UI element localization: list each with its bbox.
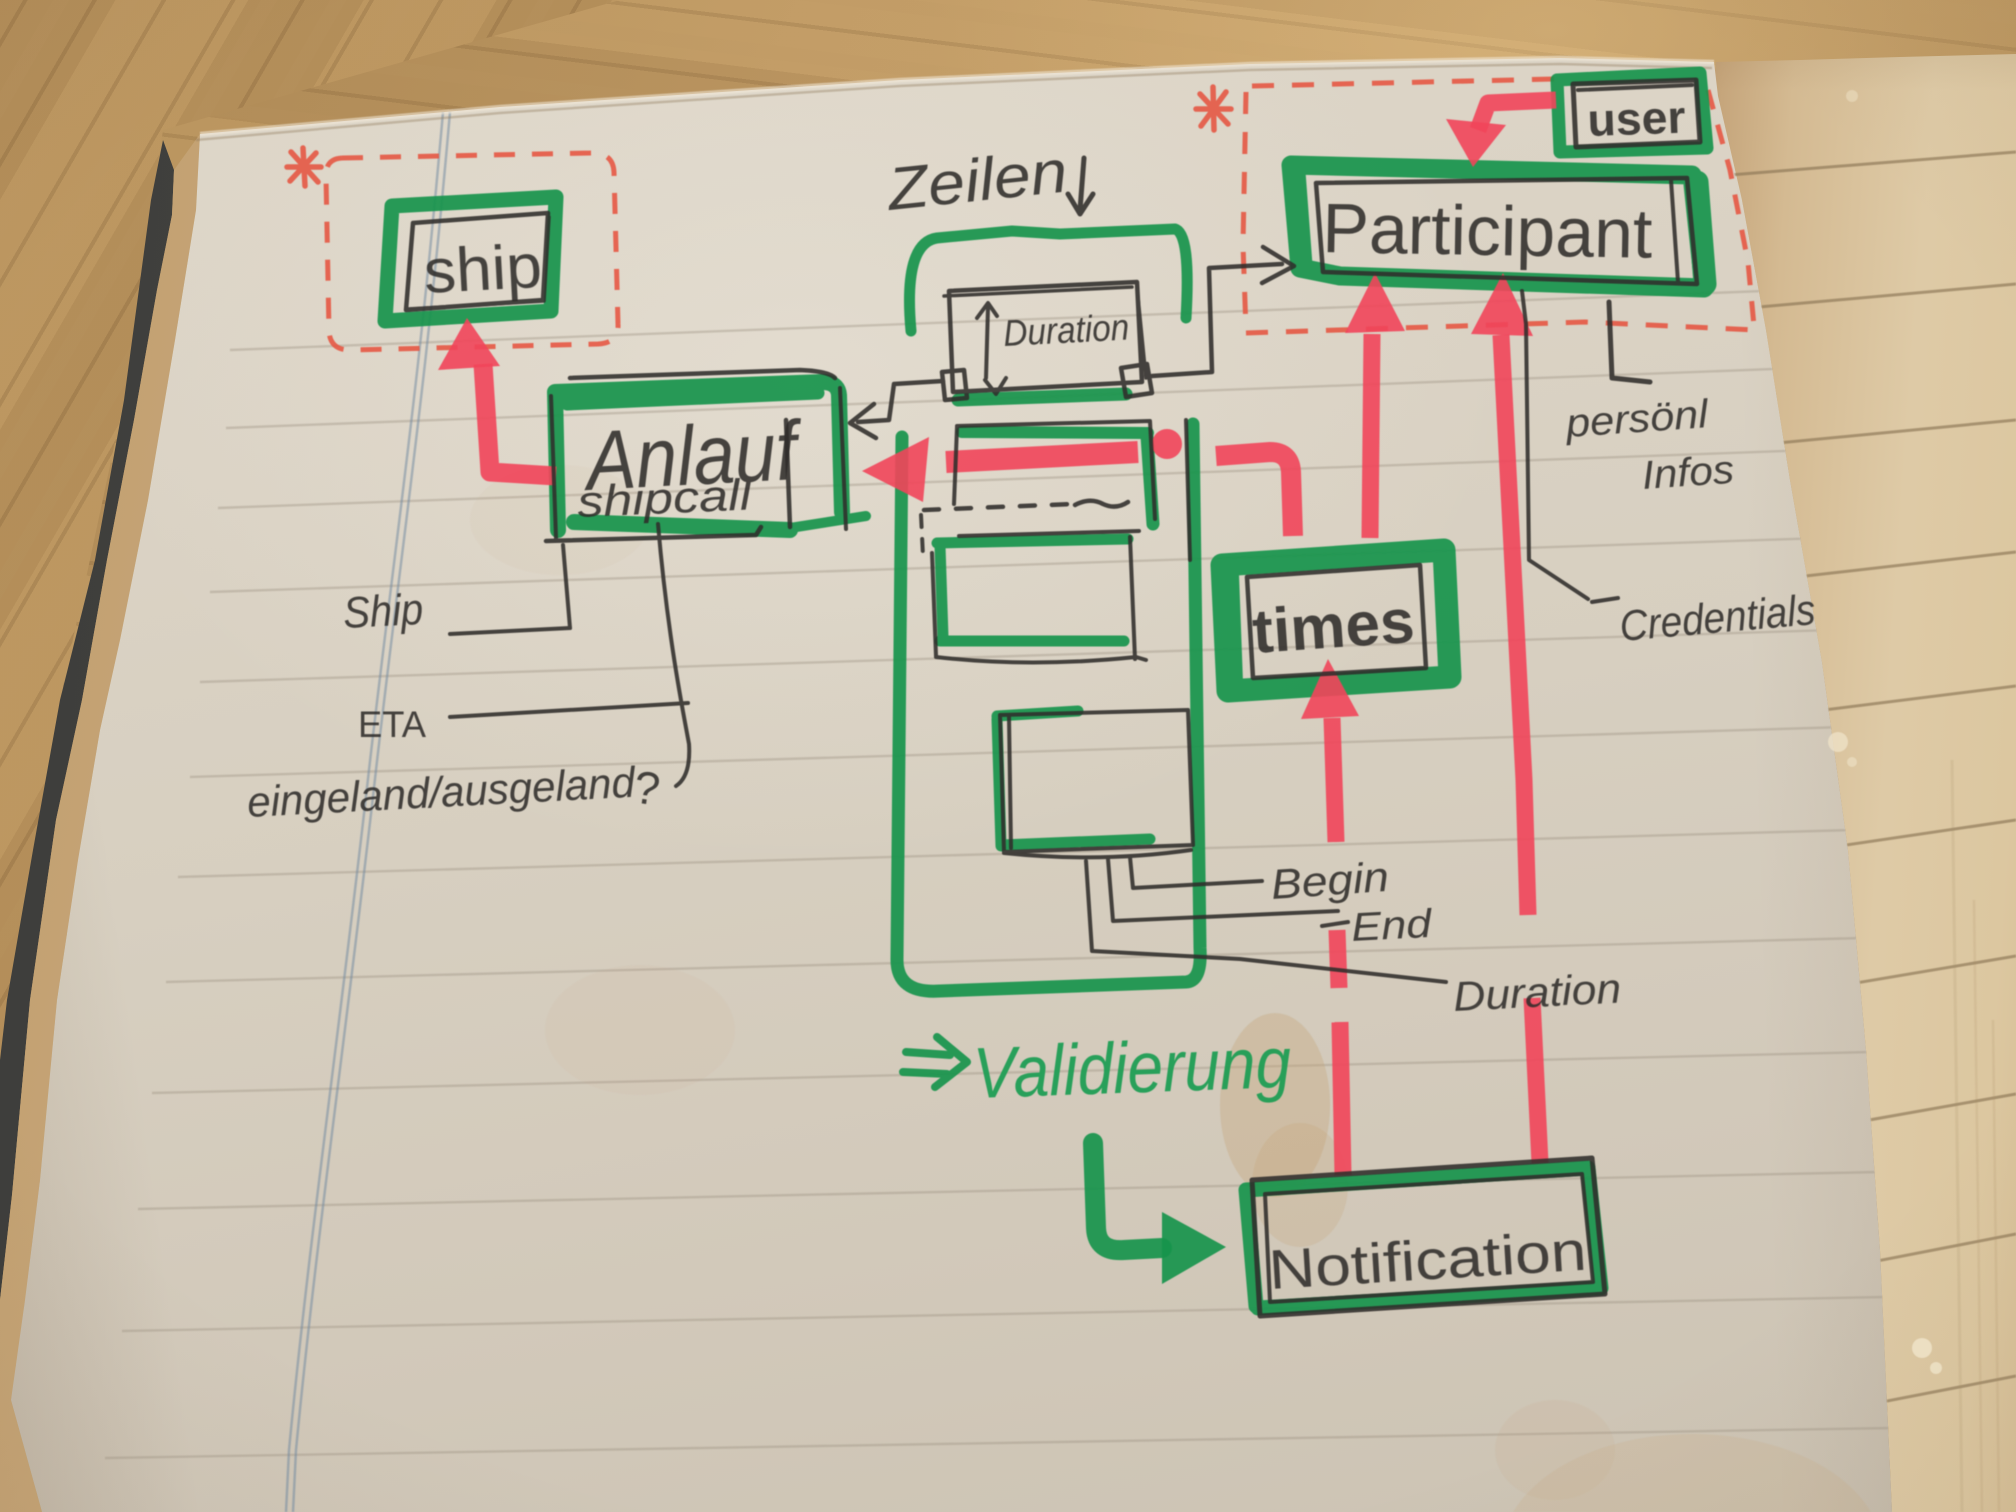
svg-text:Infos: Infos (1641, 448, 1736, 498)
svg-text:eingeland/ausgeland: eingeland/ausgeland (246, 759, 638, 827)
svg-text:?: ? (631, 760, 664, 815)
svg-text:Duration: Duration (1002, 306, 1130, 354)
svg-text:End: End (1350, 902, 1434, 950)
svg-text:Duration: Duration (1452, 964, 1622, 1020)
svg-text:shipcall: shipcall (576, 470, 753, 527)
svg-text:persönl: persönl (1563, 392, 1710, 446)
svg-text:ETA: ETA (358, 704, 426, 745)
svg-text:Ship: Ship (342, 585, 424, 638)
svg-text:Zeilen: Zeilen (882, 137, 1070, 223)
svg-text:Credentials: Credentials (1618, 586, 1817, 651)
svg-text:Validierung: Validierung (972, 1023, 1293, 1114)
svg-text:user: user (1587, 91, 1687, 146)
svg-text:times: times (1250, 587, 1416, 667)
svg-text:Participant: Participant (1322, 189, 1653, 273)
svg-text:ship: ship (422, 232, 543, 307)
svg-text:Begin: Begin (1269, 853, 1390, 908)
